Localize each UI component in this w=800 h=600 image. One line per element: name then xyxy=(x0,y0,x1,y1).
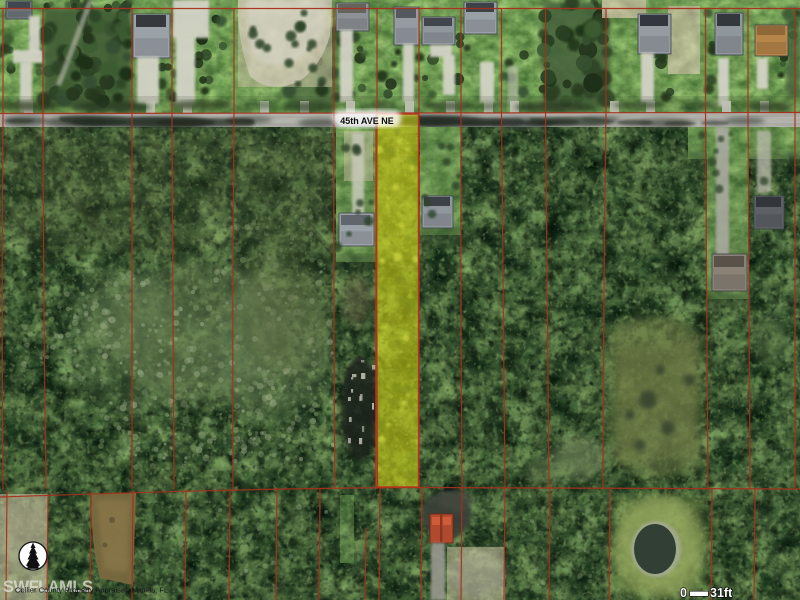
svg-text:0: 0 xyxy=(680,586,687,600)
svg-text:45th AVE NE: 45th AVE NE xyxy=(340,116,394,126)
svg-text:31ft: 31ft xyxy=(710,586,733,600)
svg-text:Collier County Property Apprai: Collier County Property Appraiser, Naple… xyxy=(15,586,170,595)
